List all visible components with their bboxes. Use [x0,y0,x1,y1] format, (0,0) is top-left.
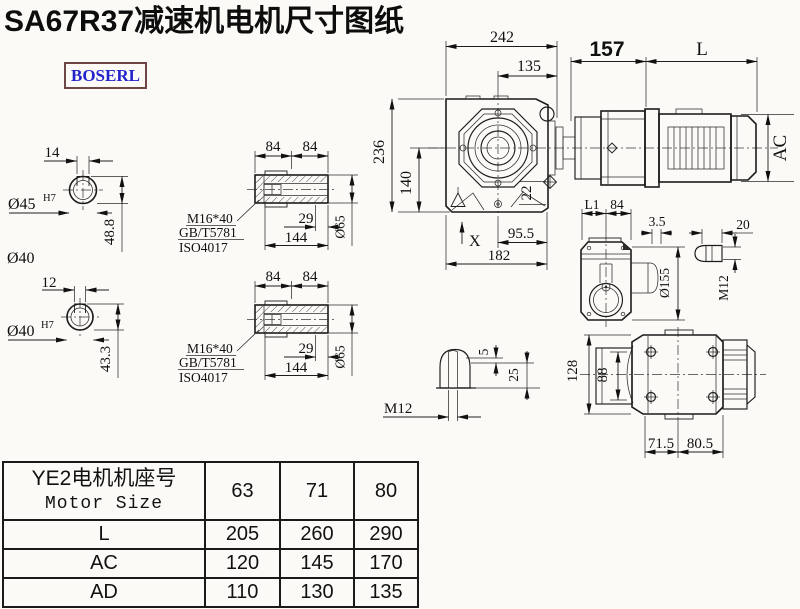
table-cell: 290 [354,520,418,549]
motor-size-table: YE2电机机座号 Motor Size 63 71 80 L 205 260 2… [2,461,419,608]
label-std2: ISO4017 [179,370,228,385]
label-thread: M16*40 [187,341,233,356]
shaft-section-40: 12 Ø40 H7 43.3 [7,275,124,378]
dim-84b: 84 [303,269,319,285]
label-X: X [469,233,481,250]
shaft-section-45: 14 Ø45 H7 48.8 Ø40 [7,145,128,267]
dim-84a: 84 [266,139,282,155]
table-cell: 260 [280,520,354,549]
key-detail: 5 25 M12 [383,345,540,421]
label-std1: GB/T5781 [179,355,237,370]
tab-detail: 20 M12 [689,217,753,301]
dim-144: 144 [285,360,308,376]
table-row: AD 110 130 135 [3,578,418,607]
table-cell: 120 [205,549,280,578]
dim-L: L [696,39,708,60]
dim-tab-M12: M12 [716,275,731,301]
table-size-col: 63 [205,462,280,520]
dim-715: 71.5 [648,436,674,452]
dim-157: 157 [589,38,624,61]
side-tab [631,263,658,293]
table-cell: 145 [280,549,354,578]
dim-135: 135 [517,58,541,75]
dim-242: 242 [490,29,514,46]
label-thread: M16*40 [187,211,233,226]
table-row: AC 120 145 170 [3,549,418,578]
table-cell: 205 [205,520,280,549]
dim-key-width-45: 14 [45,145,61,161]
table-header-en: Motor Size [4,492,204,516]
dim-25: 25 [506,368,521,382]
dim-bore-40: Ø40 [7,323,35,340]
row-label: L [3,520,205,549]
dim-depth-433: 43.3 [98,346,114,372]
label-std2: ISO4017 [179,240,228,255]
oil-plug-icon [451,193,465,207]
dim-dia155: Ø155 [657,268,672,298]
dim-bore-45: Ø45 [8,196,36,213]
dim-955: 95.5 [508,226,534,242]
dim-L1: L1 [585,197,600,212]
dim-144: 144 [285,230,308,246]
table-header-cn: YE2电机机座号 [4,466,204,492]
dim-dia65: Ø65 [333,345,348,368]
label-dia40: Ø40 [7,250,35,267]
dim-128: 128 [565,360,581,383]
dim-key-width-40: 12 [42,275,57,291]
table-header-cell: YE2电机机座号 Motor Size [3,462,205,520]
dim-20: 20 [736,217,750,232]
table-cell: 170 [354,549,418,578]
side-view: L1 84 3.5 Ø155 [581,197,685,327]
dim-88: 88 [595,368,611,383]
dim-84b: 84 [303,139,319,155]
dim-22: 22 [519,186,535,201]
table-size-col: 80 [354,462,418,520]
dim-35: 3.5 [649,214,666,229]
dim-bore-45-tol: H7 [43,193,56,204]
sleeve-view-top: 84 84 29 144 Ø65 M16*40 GB/T5781 ISO4017 [178,139,358,255]
row-label: AD [3,578,205,607]
table-row: L 205 260 290 [3,520,418,549]
dim-84: 84 [610,197,624,212]
dim-29: 29 [299,211,314,227]
bottom-view: 128 88 71.5 80.5 [565,327,766,458]
dim-AC: AC [770,135,791,161]
table-cell: 110 [205,578,280,607]
dim-140: 140 [398,171,415,195]
row-label: AC [3,549,205,578]
label-std1: GB/T5781 [179,225,237,240]
lifting-hole [540,107,554,121]
table-cell: 130 [280,578,354,607]
dim-84a: 84 [266,269,282,285]
sleeve-view-bottom: 84 84 29 144 Ø65 M16*40 GB/T5781 ISO4017 [178,269,358,385]
table-cell: 135 [354,578,418,607]
dim-M12: M12 [384,401,412,417]
dim-236: 236 [371,140,388,164]
dim-dia65: Ø65 [333,215,348,238]
drawing-sheet: SA67R37减速机电机尺寸图纸 BOSERL 14 Ø45 H7 [0,0,800,609]
dim-805: 80.5 [687,436,713,452]
dim-29: 29 [299,341,314,357]
dim-bore-40-tol: H7 [41,320,54,331]
tab-shape [695,246,722,262]
table-size-col: 71 [280,462,354,520]
main-assembly-view: 242 135 157 L AC 236 140 22 [371,29,794,270]
dim-182: 182 [488,248,511,264]
dim-5: 5 [476,348,491,355]
dim-depth-488: 48.8 [102,219,118,245]
